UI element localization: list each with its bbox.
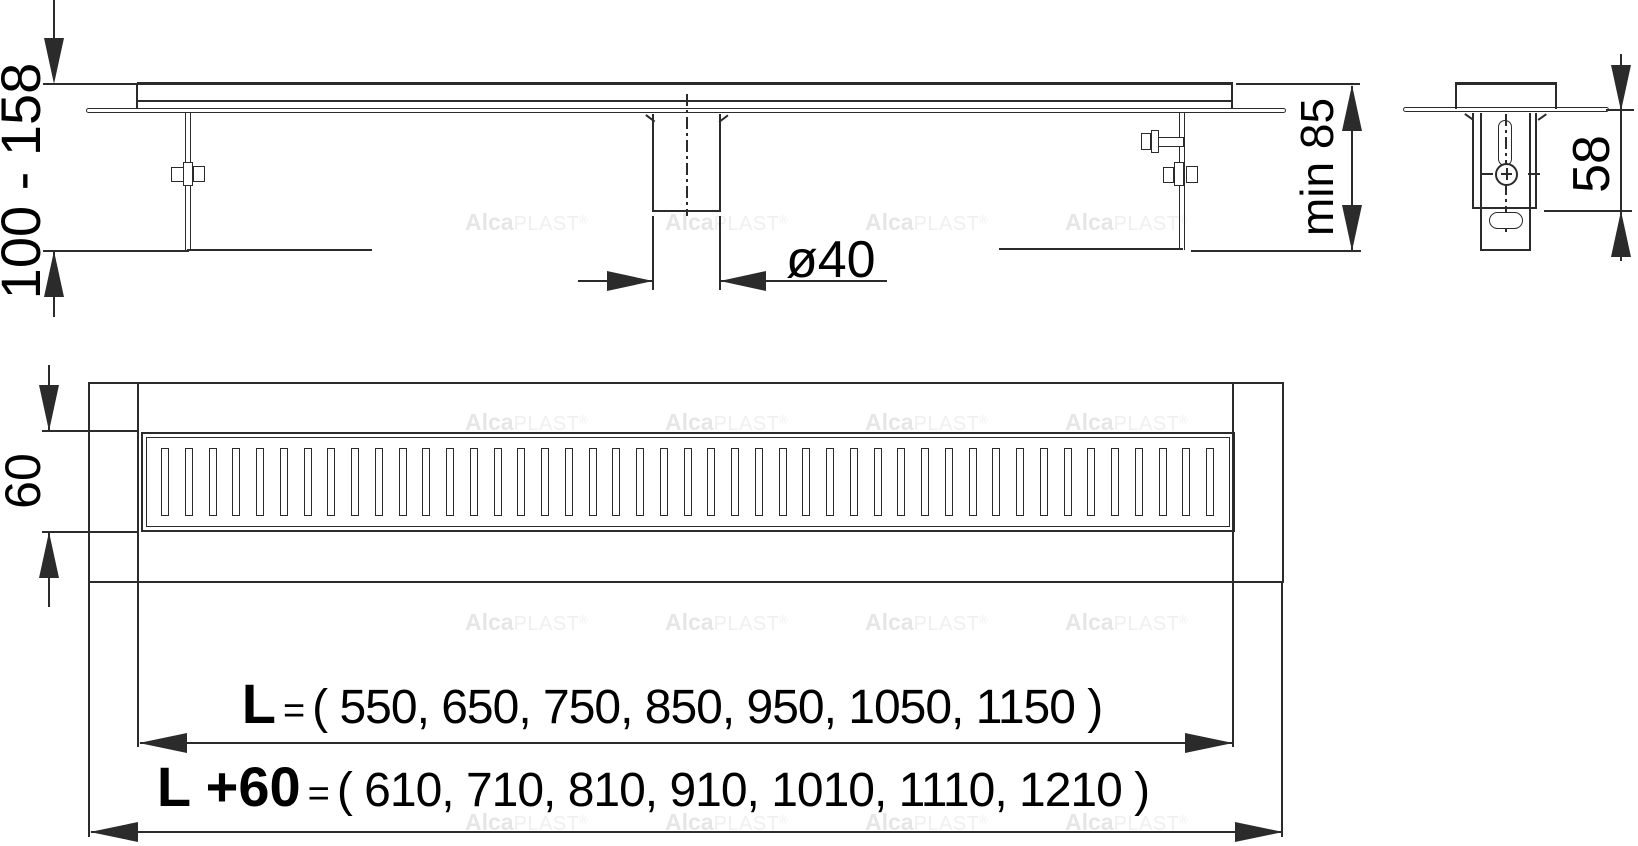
total-length-dimension-text: L +60 = ( 610, 710, 810, 910, 1010, 1110… bbox=[83, 759, 1223, 815]
grate-slot bbox=[256, 448, 264, 516]
arrowhead-down-icon bbox=[1342, 205, 1362, 251]
grate-slot bbox=[470, 448, 478, 516]
bracket-housing-right bbox=[1535, 113, 1537, 209]
lower-slot bbox=[1489, 212, 1523, 229]
extension-tick bbox=[1606, 109, 1634, 111]
arrowhead-right-icon bbox=[1185, 733, 1233, 753]
grate-slot bbox=[1064, 448, 1072, 516]
right-bracket-foot bbox=[999, 248, 1183, 250]
grate-slot bbox=[755, 448, 763, 516]
grate-slot bbox=[1040, 448, 1048, 516]
dim-label-outlet-diameter: ø40 bbox=[786, 234, 876, 286]
drain-body-top-edge bbox=[137, 82, 1233, 85]
grate-slot bbox=[541, 448, 549, 516]
grate-slot bbox=[565, 448, 573, 516]
crosshair-tick bbox=[1481, 173, 1493, 175]
outlet-pipe-right-edge bbox=[719, 114, 721, 211]
grate-slot bbox=[1206, 448, 1214, 516]
arrowhead-down-icon bbox=[39, 385, 59, 431]
arrowhead-left-icon bbox=[90, 822, 138, 842]
grate-slot bbox=[992, 448, 1000, 516]
dimension-line bbox=[53, 251, 55, 317]
length-label: L bbox=[242, 676, 276, 732]
extension-line bbox=[43, 250, 189, 252]
trough-wall-edge bbox=[1538, 113, 1547, 120]
left-bracket-nut bbox=[183, 162, 193, 186]
grate-slot bbox=[779, 448, 787, 516]
grate-slot bbox=[161, 448, 169, 516]
right-bracket-nut bbox=[1174, 162, 1184, 186]
grate-slot bbox=[969, 448, 977, 516]
grate-slot bbox=[897, 448, 905, 516]
crosshair-tick bbox=[1506, 168, 1508, 180]
grate-slot bbox=[1087, 448, 1095, 516]
drain-body-left-edge bbox=[136, 83, 138, 110]
length-dimension-text: L = ( 550, 650, 750, 850, 950, 1050, 115… bbox=[122, 676, 1222, 732]
channel-left-edge bbox=[137, 383, 139, 582]
dim-label-height-range: 100 - 158 bbox=[0, 63, 49, 300]
right-bracket-bolt bbox=[1163, 167, 1174, 183]
length-equals: = bbox=[283, 692, 305, 730]
grate-slot bbox=[1016, 448, 1024, 516]
body-left-edge bbox=[1455, 83, 1457, 109]
grate-slot bbox=[375, 448, 383, 516]
body-right-edge bbox=[1555, 83, 1557, 109]
grate-slot bbox=[731, 448, 739, 516]
grate-slot bbox=[517, 448, 525, 516]
dim-label-min-depth: min 85 bbox=[1294, 98, 1340, 236]
dim-label-bracket-height: 58 bbox=[1566, 135, 1618, 193]
extension-line bbox=[1191, 250, 1361, 252]
extension-line bbox=[42, 430, 139, 432]
bracket-housing-left bbox=[1472, 113, 1474, 209]
grate-slot bbox=[280, 448, 288, 516]
grate-slot bbox=[1182, 448, 1190, 516]
grate-slot bbox=[209, 448, 217, 516]
extension-line bbox=[1281, 583, 1283, 837]
grate-slot bbox=[422, 448, 430, 516]
grate-slot bbox=[874, 448, 882, 516]
grate-slot bbox=[921, 448, 929, 516]
grate-slot bbox=[707, 448, 715, 516]
grate-slot bbox=[826, 448, 834, 516]
left-bracket-foot bbox=[187, 249, 372, 251]
grate-slot bbox=[232, 448, 240, 516]
dimension-line bbox=[53, 0, 55, 40]
arrowhead-right-icon bbox=[1235, 822, 1283, 842]
grate-slot-row bbox=[161, 448, 1214, 516]
arrowhead-up-icon bbox=[1342, 85, 1362, 131]
outlet-pipe-left-edge bbox=[652, 114, 654, 211]
grate-slot bbox=[399, 448, 407, 516]
grate-slot bbox=[684, 448, 692, 516]
technical-drawing-canvas: AlcaPLAST® AlcaPLAST®AlcaPLAST®AlcaPLAST… bbox=[0, 0, 1638, 846]
grate-slot bbox=[446, 448, 454, 516]
crosshair-tick bbox=[1528, 173, 1540, 175]
bracket-leg-right bbox=[1529, 113, 1531, 251]
flange-plate-section bbox=[1403, 107, 1609, 112]
dimension-line bbox=[1620, 211, 1622, 261]
grate-slot bbox=[327, 448, 335, 516]
body-top-edge bbox=[1455, 82, 1557, 85]
grate-slot bbox=[589, 448, 597, 516]
total-length-values: ( 610, 710, 810, 910, 1010, 1110, 1210 ) bbox=[337, 767, 1149, 815]
grate-slot bbox=[1135, 448, 1143, 516]
right-bracket-washer bbox=[1186, 166, 1198, 183]
right-bracket-screw-shaft bbox=[1158, 137, 1184, 147]
grate-slot bbox=[304, 448, 312, 516]
right-bracket-screw-head bbox=[1141, 133, 1151, 150]
grate-slot bbox=[612, 448, 620, 516]
grate-slot bbox=[494, 448, 502, 516]
dimension-line bbox=[140, 742, 1232, 744]
extension-line bbox=[1544, 210, 1632, 212]
arrowhead-left-icon bbox=[720, 271, 766, 291]
grate-slot bbox=[1111, 448, 1119, 516]
arrowhead-left-icon bbox=[139, 733, 187, 753]
grate-slot bbox=[636, 448, 644, 516]
arrowhead-down-icon bbox=[1611, 65, 1631, 111]
drain-body-bottom-edge bbox=[137, 100, 1233, 102]
dimension-line bbox=[91, 831, 1282, 833]
extension-line bbox=[1232, 583, 1234, 747]
total-length-label: L +60 bbox=[157, 759, 301, 815]
grate-slot bbox=[185, 448, 193, 516]
grate-slot bbox=[660, 448, 668, 516]
grate-slot bbox=[351, 448, 359, 516]
length-values: ( 550, 650, 750, 850, 950, 1050, 1150 ) bbox=[312, 684, 1102, 732]
extension-line bbox=[43, 83, 136, 85]
left-bracket-washer bbox=[193, 166, 205, 182]
grate-slot bbox=[1159, 448, 1167, 516]
grate-slot bbox=[945, 448, 953, 516]
dim-label-grate-width: 60 bbox=[0, 453, 48, 509]
total-length-equals: = bbox=[308, 775, 330, 813]
arrowhead-right-icon bbox=[607, 271, 653, 291]
drain-body-right-edge bbox=[1231, 83, 1233, 110]
dimension-line bbox=[48, 532, 50, 607]
bracket-leg-left bbox=[1480, 113, 1482, 251]
grate-slot bbox=[802, 448, 810, 516]
drawing-layer: 100 - 158 bbox=[0, 0, 1638, 846]
grate-slot bbox=[850, 448, 858, 516]
outlet-centerline bbox=[686, 94, 688, 216]
bracket-leg-bottom bbox=[1480, 249, 1531, 251]
